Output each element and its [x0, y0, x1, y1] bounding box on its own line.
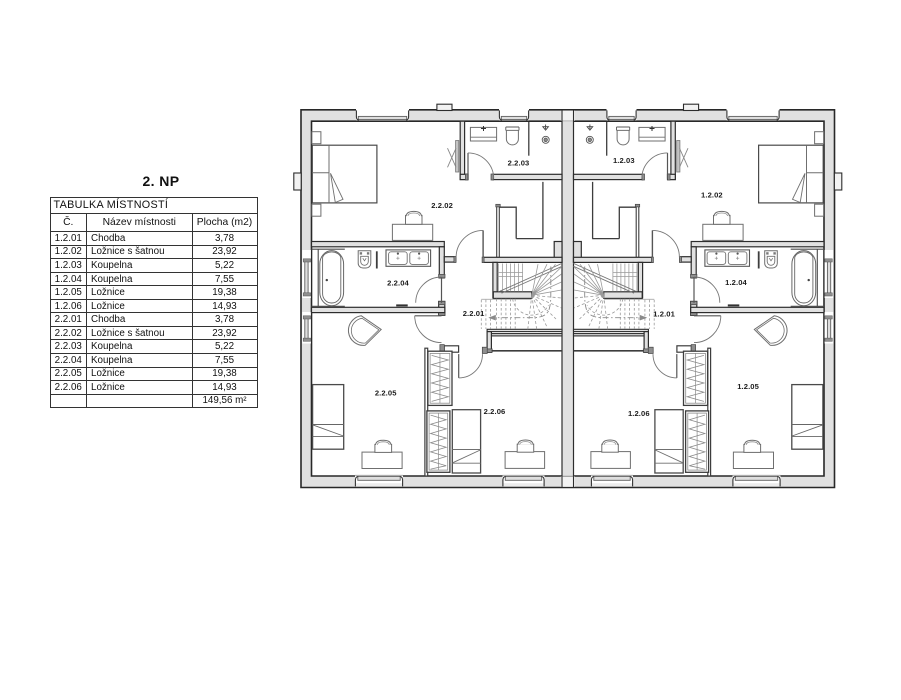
- svg-text:1.2.04: 1.2.04: [725, 278, 747, 287]
- svg-text:1.2.05: 1.2.05: [737, 382, 759, 391]
- svg-text:2.2.06: 2.2.06: [484, 407, 506, 416]
- svg-text:1.2.01: 1.2.01: [653, 309, 675, 318]
- svg-text:1.2.03: 1.2.03: [613, 156, 635, 165]
- svg-text:2.2.05: 2.2.05: [375, 389, 397, 398]
- svg-text:2.2.01: 2.2.01: [463, 309, 485, 318]
- svg-text:1.2.02: 1.2.02: [701, 191, 723, 200]
- svg-text:2.2.02: 2.2.02: [431, 201, 453, 210]
- svg-text:1.2.06: 1.2.06: [628, 409, 650, 418]
- svg-text:2.2.04: 2.2.04: [387, 279, 409, 288]
- svg-text:2.2.03: 2.2.03: [508, 159, 530, 168]
